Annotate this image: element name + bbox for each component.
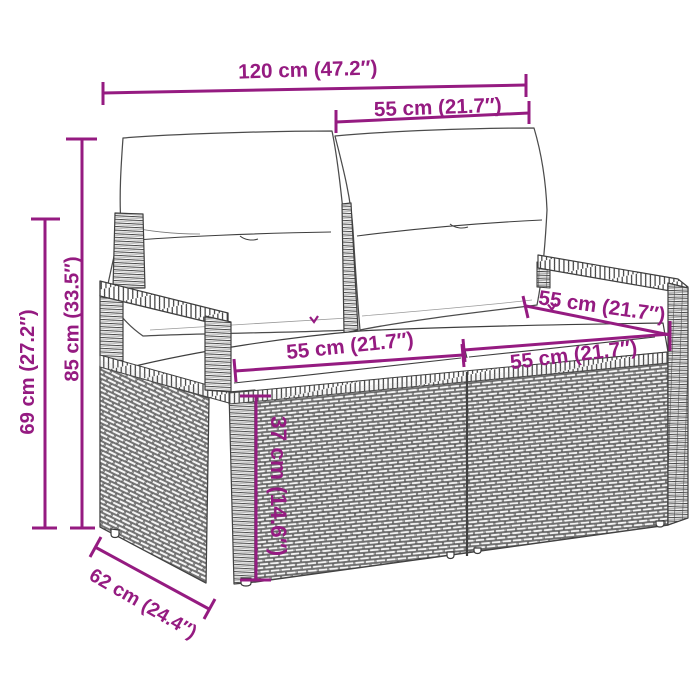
svg-text:55 cm (21.7″): 55 cm (21.7″) <box>374 94 503 121</box>
svg-text:69 cm (27.2″): 69 cm (27.2″) <box>17 309 39 434</box>
svg-text:62 cm (24.4″): 62 cm (24.4″) <box>85 564 200 643</box>
svg-text:37 cm (14.6″): 37 cm (14.6″) <box>266 416 291 556</box>
svg-text:120 cm (47.2″): 120 cm (47.2″) <box>238 56 378 83</box>
svg-text:85 cm (33.5″): 85 cm (33.5″) <box>62 256 84 381</box>
